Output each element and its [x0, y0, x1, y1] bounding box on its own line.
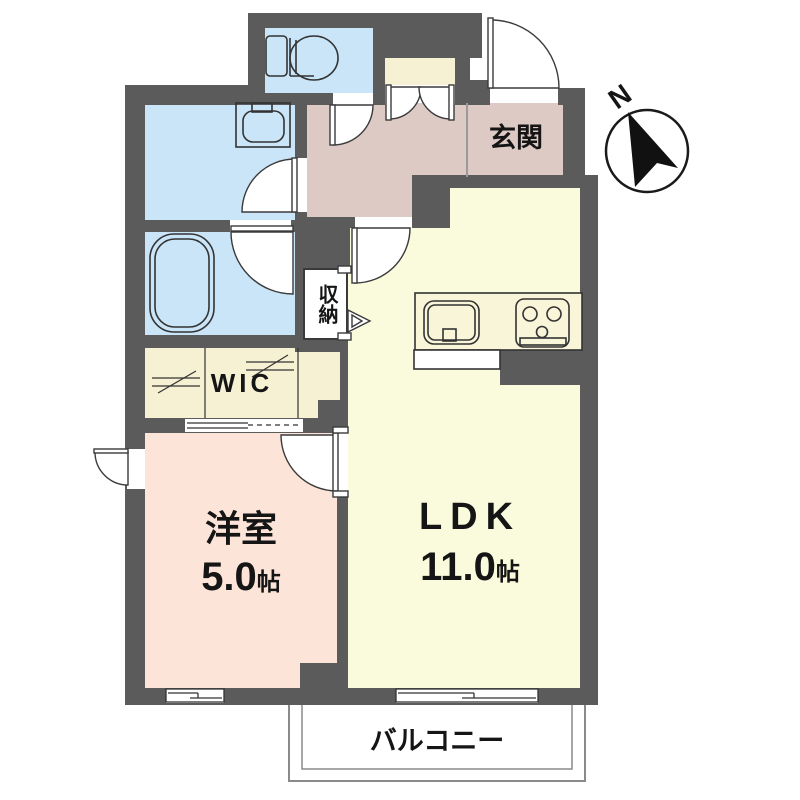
wic-slider-lines	[187, 423, 301, 428]
ldk-label: LDK 11.0帖	[375, 498, 565, 588]
bathroom-door-swing	[231, 226, 293, 294]
balcony-label: バルコニー	[297, 727, 577, 755]
west-window-swing	[94, 449, 128, 485]
ldk-size: 11.0帖	[375, 546, 565, 588]
compass	[606, 110, 688, 192]
toilet-icon	[266, 36, 338, 80]
toilet-door-swing	[330, 105, 373, 145]
bathtub-icon	[150, 234, 214, 332]
front-door-swing	[488, 18, 559, 88]
hall-ldk-door-swing	[352, 228, 410, 283]
ldk-name: LDK	[375, 498, 565, 538]
balcony-window-lines	[396, 689, 538, 702]
plan-graphics	[0, 0, 800, 800]
wic-label: WIC	[162, 370, 322, 397]
storage-label: 収納	[303, 268, 348, 340]
entrance-closet-doors	[386, 85, 454, 120]
western-room-size: 5.0帖	[151, 556, 331, 598]
floor-plan: 玄関 収納 WIC 洋室 5.0帖 LDK 11.0帖 バルコニー N	[0, 0, 800, 800]
western-door-swing	[281, 427, 348, 497]
washbasin-icon	[236, 103, 290, 147]
washroom-door-swing	[242, 158, 297, 212]
western-room-label: 洋室 5.0帖	[151, 510, 331, 598]
western-room-name: 洋室	[151, 510, 331, 548]
western-window-lines	[166, 689, 224, 702]
entrance-label: 玄関	[456, 124, 576, 152]
